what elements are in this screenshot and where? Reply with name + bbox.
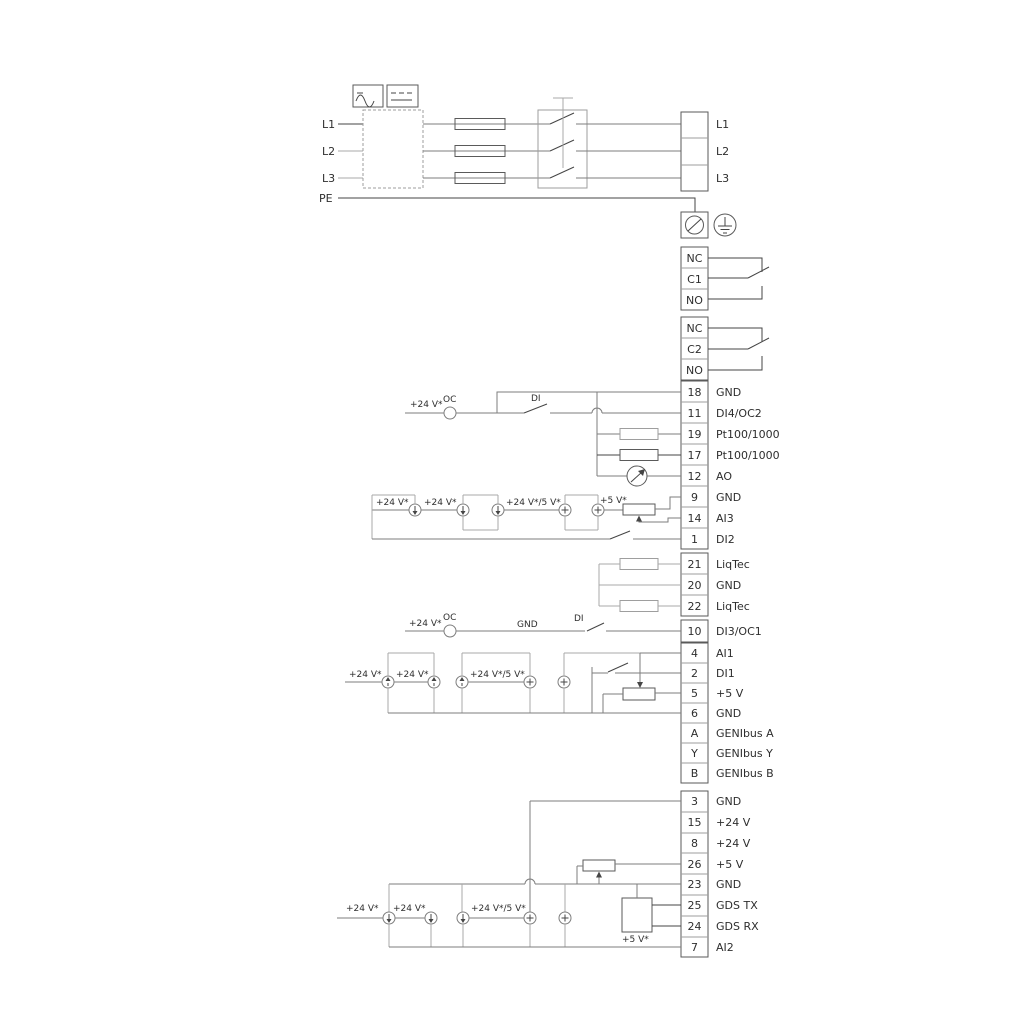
terminal-number: 5 [691, 687, 698, 700]
terminal-number: 14 [688, 512, 702, 525]
terminal-number: 4 [691, 647, 698, 660]
terminal-label: AI2 [716, 941, 734, 954]
open-collector-icon [444, 625, 456, 637]
relay1-section: NC C1 NO [681, 247, 769, 310]
terminal-number: 7 [691, 941, 698, 954]
di1-switch-blade [608, 663, 628, 672]
relay1-wires [708, 258, 762, 299]
wire [577, 864, 681, 884]
io-group3-section: 3 GND 15 +24 V 8 +24 V 26 +5 V 23 GND 25… [337, 791, 759, 957]
ac-symbol-icon [353, 85, 383, 107]
open-collector-icon [444, 407, 456, 419]
terminal-number: 9 [691, 491, 698, 504]
wire [592, 667, 681, 713]
phase-label-l3: L3 [322, 172, 335, 185]
switch-link [553, 98, 573, 168]
relay-terminal: NC [687, 252, 703, 265]
bracket-rails-bottom [388, 688, 564, 713]
terminal-label: AO [716, 470, 732, 483]
io-group2-section: 4 AI1 2 DI1 5 +5 V 6 GND A GENIbus A Y G… [345, 643, 774, 783]
terminal-label: L1 [716, 118, 729, 131]
filter-dashed-box [363, 110, 423, 188]
di-switch-blade [524, 404, 547, 413]
power-terminal-block [681, 112, 708, 191]
terminal-number: 3 [691, 795, 698, 808]
phase-label-pe: PE [319, 192, 333, 205]
terminal-number: 2 [691, 667, 698, 680]
pot-wiper-arrow [636, 516, 642, 522]
terminal-number: 1 [691, 533, 698, 546]
terminal-number: 6 [691, 707, 698, 720]
annotation-oc: OC [443, 395, 456, 405]
switch-blades [550, 113, 574, 178]
terminal-label: GND [716, 491, 741, 504]
terminal-label: GND [716, 878, 741, 891]
group3-dividers [681, 812, 708, 937]
annotation-24v: +24 V* [424, 498, 457, 508]
liqtec-sensor [620, 601, 658, 612]
meter-needle [631, 472, 642, 482]
relay-terminal: NC [687, 322, 703, 335]
power-terminal-dividers [681, 138, 708, 165]
annotation-gnd: GND [517, 620, 538, 630]
terminal-label: GDS RX [716, 920, 759, 933]
annotation-24v: +24 V* [349, 670, 382, 680]
terminal-number: 18 [688, 386, 702, 399]
gds-wires [652, 905, 681, 926]
terminal-number: 21 [688, 558, 702, 571]
annotation-24v: +24 V* [376, 498, 409, 508]
terminal-label: DI3/OC1 [716, 625, 762, 638]
annotation-24v-5v: +24 V*/5 V* [506, 498, 561, 508]
pot-wiper-arrow [637, 682, 643, 688]
wire-l2-l3 [338, 151, 363, 178]
terminal-number: 11 [688, 407, 702, 420]
terminal-label: +5 V [716, 858, 744, 871]
di-switch-blade [587, 623, 604, 631]
relay-terminal: NO [686, 364, 703, 377]
terminal-label: AI3 [716, 512, 734, 525]
pt100-sensor [620, 450, 658, 461]
terminal-label: L3 [716, 172, 729, 185]
wire-gnd3 [530, 801, 681, 912]
terminal-number: 24 [688, 920, 702, 933]
relay2-wires [708, 328, 762, 370]
annotation-24v: +24 V* [346, 904, 379, 914]
annotation-24v: +24 V* [410, 400, 443, 410]
di2-switch-blade [610, 531, 630, 539]
terminal-label: Pt100/1000 [716, 449, 780, 462]
terminal-number: 25 [688, 899, 702, 912]
annotation-24v-5v: +24 V*/5 V* [471, 904, 526, 914]
terminal-number: 23 [688, 878, 702, 891]
pe-slash [688, 219, 701, 231]
potentiometer [623, 504, 655, 515]
pot-wiper-arrow [596, 872, 602, 878]
wire-gnd23 [389, 879, 681, 884]
terminal-label: DI2 [716, 533, 735, 546]
terminal-number: 8 [691, 837, 698, 850]
annotation-di: DI [574, 614, 584, 624]
terminal-label: GENIbus B [716, 767, 774, 780]
terminal-label: GDS TX [716, 899, 758, 912]
power-input-section: L1 L2 L3 PE L1 L2 L3 [319, 85, 736, 238]
relay2-contact-blade [748, 338, 769, 349]
terminal-label: GENIbus A [716, 727, 774, 740]
liqtec-wires [599, 564, 681, 606]
annotation-24v: +24 V* [409, 619, 442, 629]
terminal-number: 17 [688, 449, 702, 462]
terminal-label: GENIbus Y [716, 747, 773, 760]
wire-to-terminals [576, 124, 681, 178]
relay-terminal: C1 [687, 273, 702, 286]
potentiometer [623, 688, 655, 700]
relay2-section: NC C2 NO [681, 317, 769, 380]
annotation-24v-5v: +24 V*/5 V* [470, 670, 525, 680]
terminal-label: Pt100/1000 [716, 428, 780, 441]
liqtec-section: 21 LiqTec 20 GND 22 LiqTec [599, 553, 750, 616]
wire-pe [338, 198, 695, 212]
annotation-24v: +24 V* [393, 904, 426, 914]
terminal-number: 10 [688, 625, 702, 638]
relay-terminal: NO [686, 294, 703, 307]
wire [655, 497, 681, 509]
terminal-number: B [691, 767, 699, 780]
terminal-number: 22 [688, 600, 702, 613]
terminal-label: +5 V [716, 687, 744, 700]
terminal-label: AI1 [716, 647, 734, 660]
terminal-label: LiqTec [716, 600, 750, 613]
io-group1-section: 18 GND 11 DI4/OC2 19 Pt100/1000 17 Pt100… [372, 381, 780, 549]
dc-line-glyph [391, 93, 412, 100]
terminal-number: A [691, 727, 699, 740]
terminal-label: L2 [716, 145, 729, 158]
gds-sensor-box [622, 898, 652, 932]
terminal-label: +24 V [716, 837, 751, 850]
terminal-label: GND [716, 795, 741, 808]
relay-terminal: C2 [687, 343, 702, 356]
pt100-sensor [620, 429, 658, 440]
terminal-number: 19 [688, 428, 702, 441]
ac-wave-glyph [356, 93, 374, 107]
terminal-number: 26 [688, 858, 702, 871]
terminal-number: Y [690, 747, 698, 760]
group1-dividers [681, 402, 708, 528]
terminal-number: 12 [688, 470, 702, 483]
terminal-label: DI4/OC2 [716, 407, 762, 420]
bracket-rails-bottom [463, 516, 598, 530]
wire [388, 693, 681, 713]
wire [640, 653, 681, 682]
dc-symbol-icon [387, 85, 418, 107]
liqtec-sensor [620, 559, 658, 570]
wiring-diagram: L1 L2 L3 PE L1 L2 L3 NC C1 [0, 0, 1024, 1024]
terminal-label: GND [716, 579, 741, 592]
phase-label-l1: L1 [322, 118, 335, 131]
terminal-label: +24 V [716, 816, 751, 829]
annotation-5v: +5 V* [622, 935, 649, 945]
terminal-label: GND [716, 707, 741, 720]
phase-label-l2: L2 [322, 145, 335, 158]
annotation-oc: OC [443, 613, 456, 623]
wire-to-fuses [423, 124, 550, 178]
terminal-number: 20 [688, 579, 702, 592]
earth-glyph [718, 217, 732, 233]
annotation-24v: +24 V* [396, 670, 429, 680]
terminal-label: DI1 [716, 667, 735, 680]
bracket-rails-bottom [389, 924, 565, 947]
schematic-canvas: L1 L2 L3 PE L1 L2 L3 NC C1 [0, 0, 1024, 1024]
di3-section: 10 DI3/OC1 +24 V* OC GND DI [405, 613, 762, 642]
potentiometer [583, 860, 615, 871]
terminal-number: 15 [688, 816, 702, 829]
terminal-label: GND [716, 386, 741, 399]
terminal-label: LiqTec [716, 558, 750, 571]
annotation-di: DI [531, 394, 541, 404]
wire [456, 392, 681, 413]
wire [639, 518, 681, 522]
relay1-contact-blade [748, 267, 769, 278]
